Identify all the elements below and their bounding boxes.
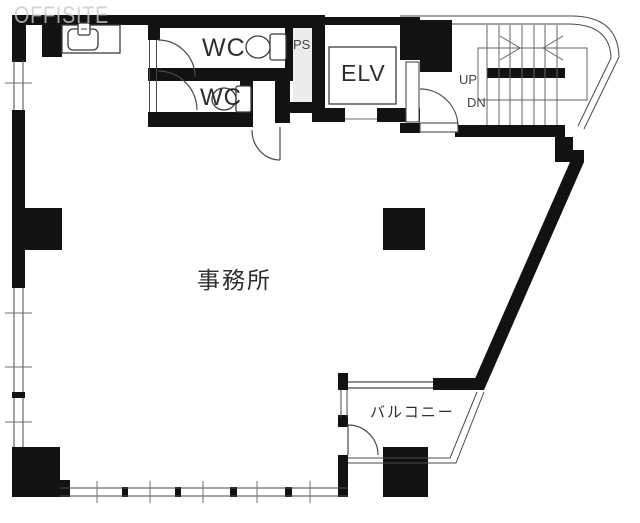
door-swing-arc-icon bbox=[252, 127, 280, 160]
stairs-down-label: DN bbox=[467, 96, 486, 109]
room-label-balcony: バルコニー bbox=[370, 405, 455, 420]
stairs-up-label: UP bbox=[459, 73, 477, 86]
room-label-office: 事務所 bbox=[197, 269, 272, 292]
diagonal-wall bbox=[470, 162, 584, 390]
room-label-elevator: ELV bbox=[341, 62, 386, 85]
room-label-wc-lower: WC bbox=[200, 86, 242, 110]
room-label-wc-upper: WC bbox=[202, 36, 246, 61]
room-label-pipe-space: PS bbox=[293, 38, 310, 51]
floor-plan: OFFISITE WC WC PS ELV UP DN 事務所 バルコニー bbox=[0, 0, 640, 523]
bottom-windows bbox=[60, 481, 348, 503]
entry-door-leaf bbox=[420, 123, 458, 132]
door-swing-arc-icon bbox=[348, 425, 378, 455]
toilet-icon bbox=[246, 34, 286, 60]
elevator-hall-panel bbox=[406, 62, 419, 122]
door-swing-arc-icon bbox=[420, 89, 458, 127]
floor-plan-drawing bbox=[0, 0, 640, 523]
watermark: OFFISITE bbox=[14, 2, 109, 30]
